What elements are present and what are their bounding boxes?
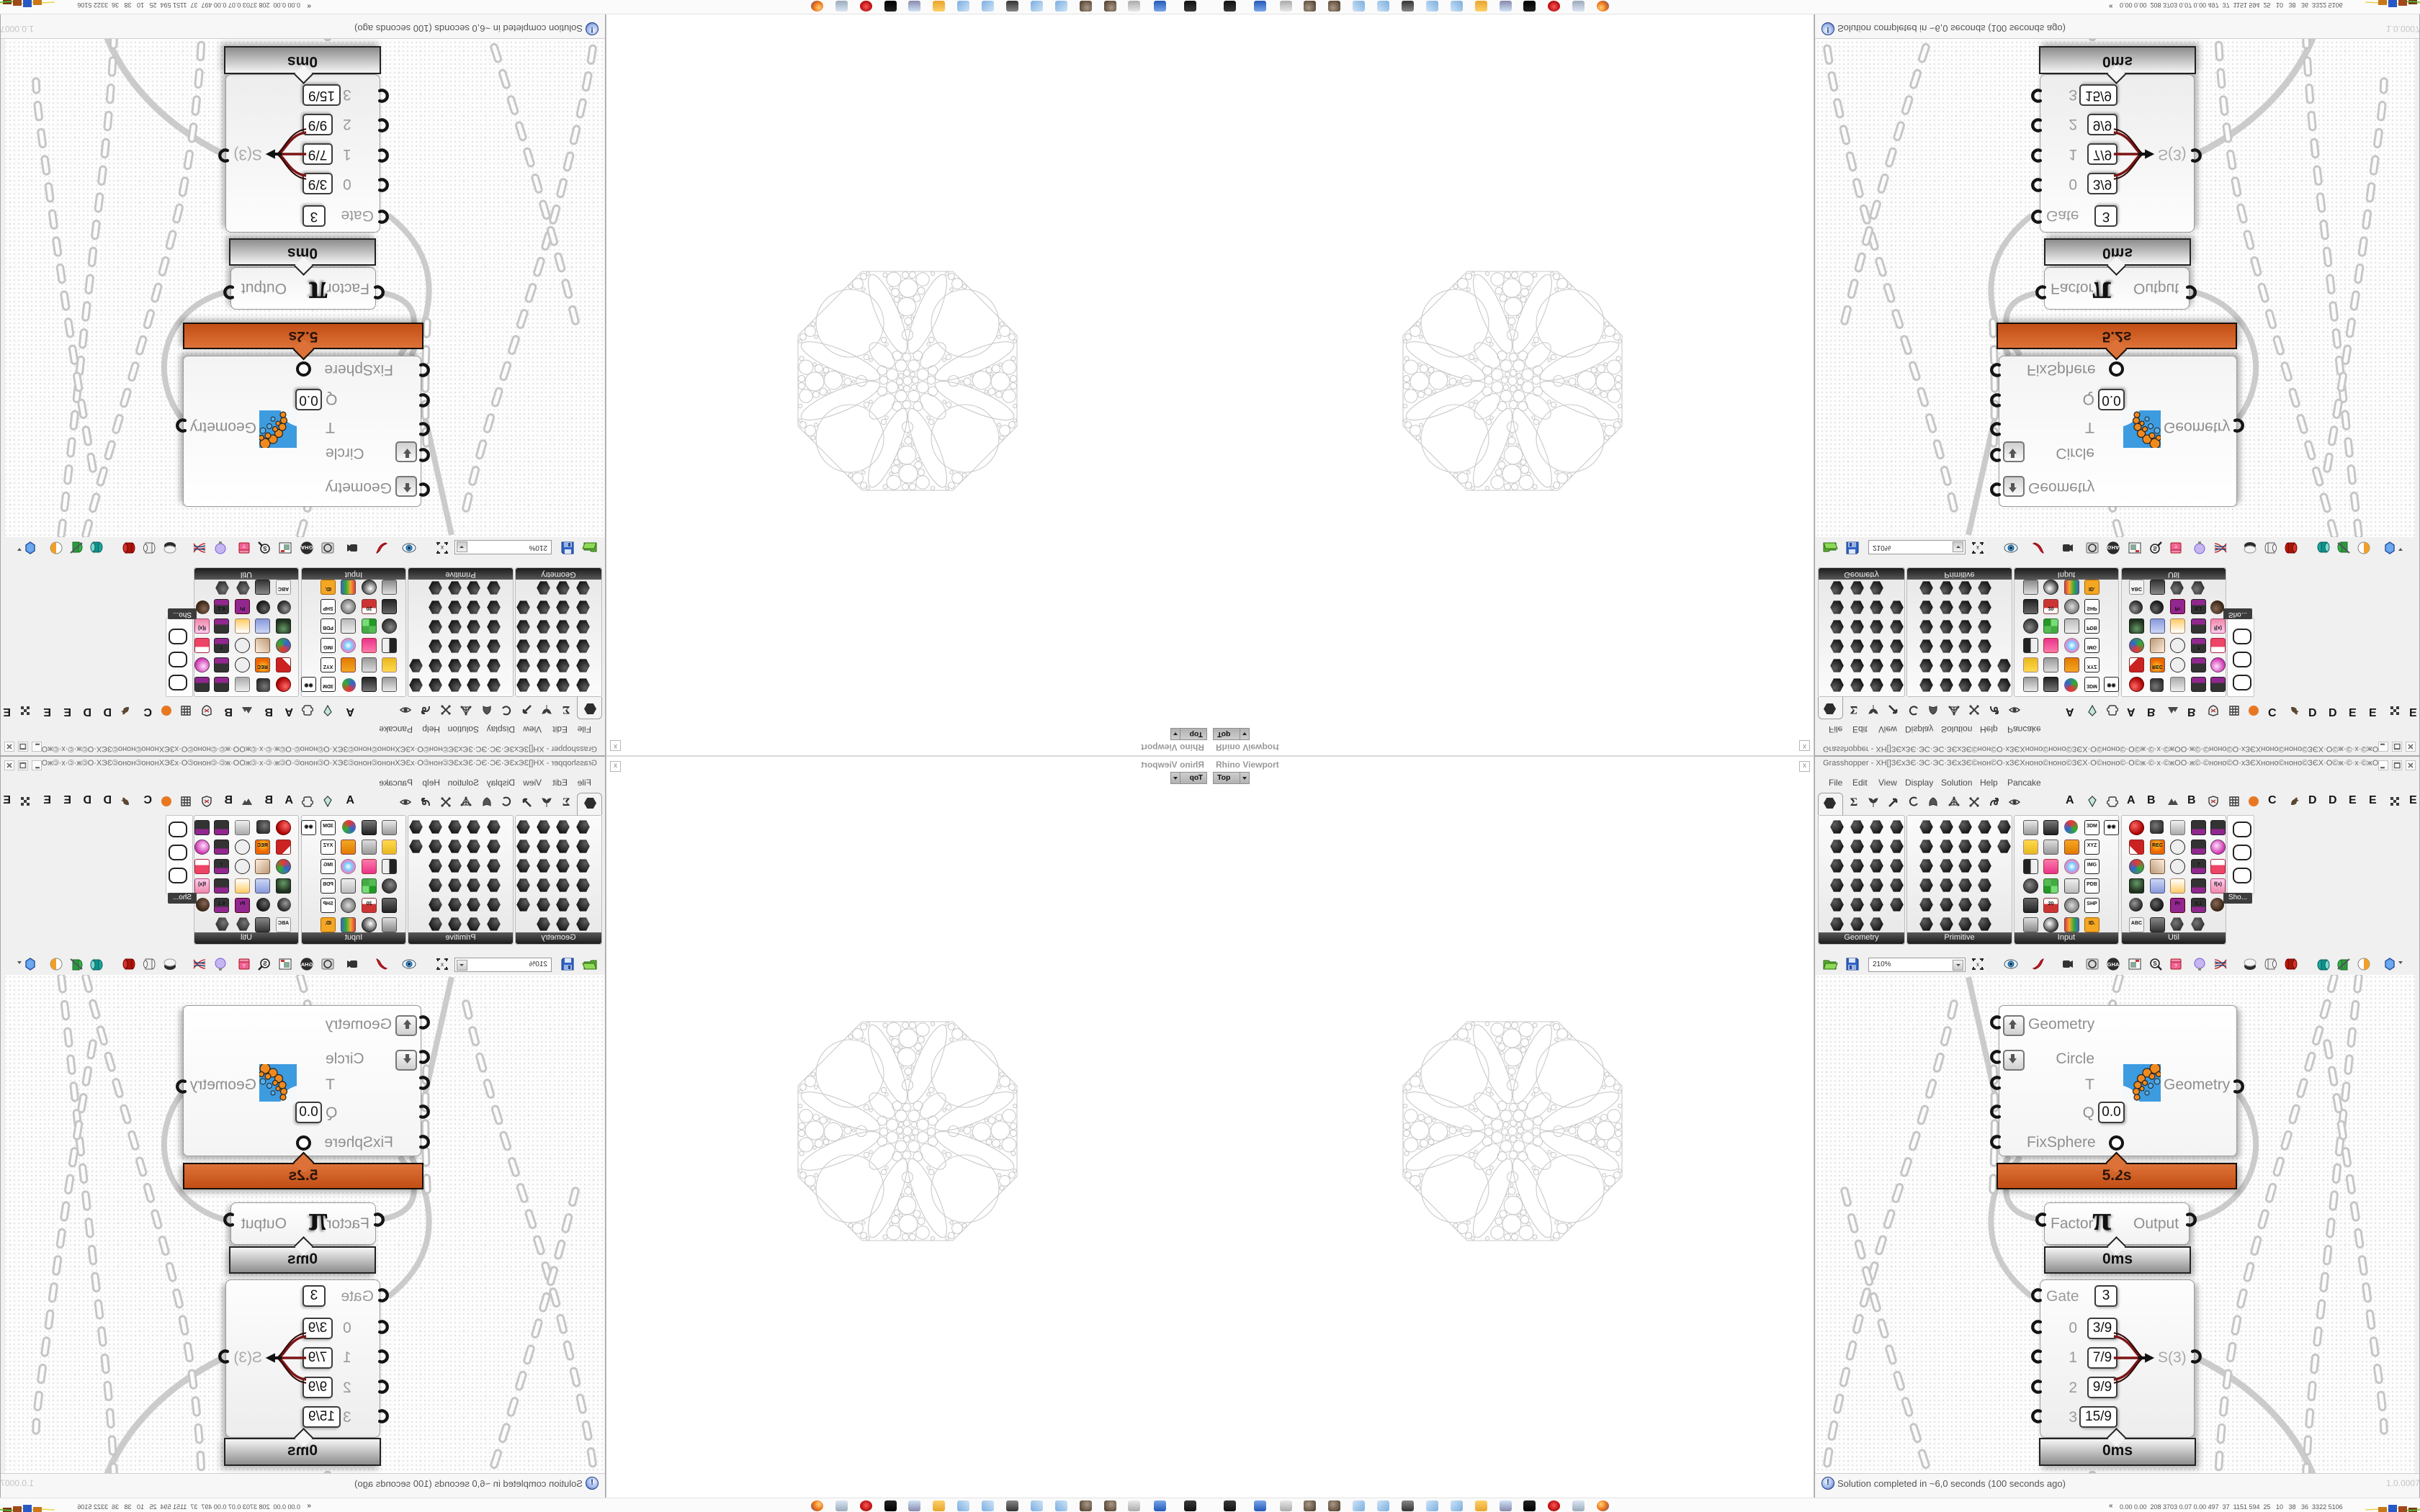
svg-text:GHA: GHA	[300, 544, 313, 551]
svg-text:?: ?	[2174, 543, 2177, 548]
svg-text:x: x	[1976, 544, 1979, 551]
svg-text:?: ?	[243, 543, 246, 548]
svg-text:GHA: GHA	[2107, 544, 2120, 551]
svg-text:x: x	[441, 961, 444, 968]
svg-text:Σ: Σ	[1850, 796, 1857, 808]
svg-text:GHA: GHA	[300, 961, 313, 968]
svg-text:?: ?	[243, 964, 246, 969]
svg-text:S: S	[263, 960, 267, 967]
svg-text:x: x	[441, 544, 444, 551]
svg-text:S: S	[263, 545, 267, 552]
svg-text:S: S	[2153, 960, 2157, 967]
svg-text:x: x	[1976, 961, 1979, 968]
svg-text:Σ: Σ	[563, 704, 570, 716]
svg-text:?: ?	[2174, 964, 2177, 969]
svg-text:GHA: GHA	[2107, 961, 2120, 968]
svg-text:S: S	[2153, 545, 2157, 552]
svg-text:Σ: Σ	[1850, 704, 1857, 716]
svg-text:Σ: Σ	[563, 796, 570, 808]
